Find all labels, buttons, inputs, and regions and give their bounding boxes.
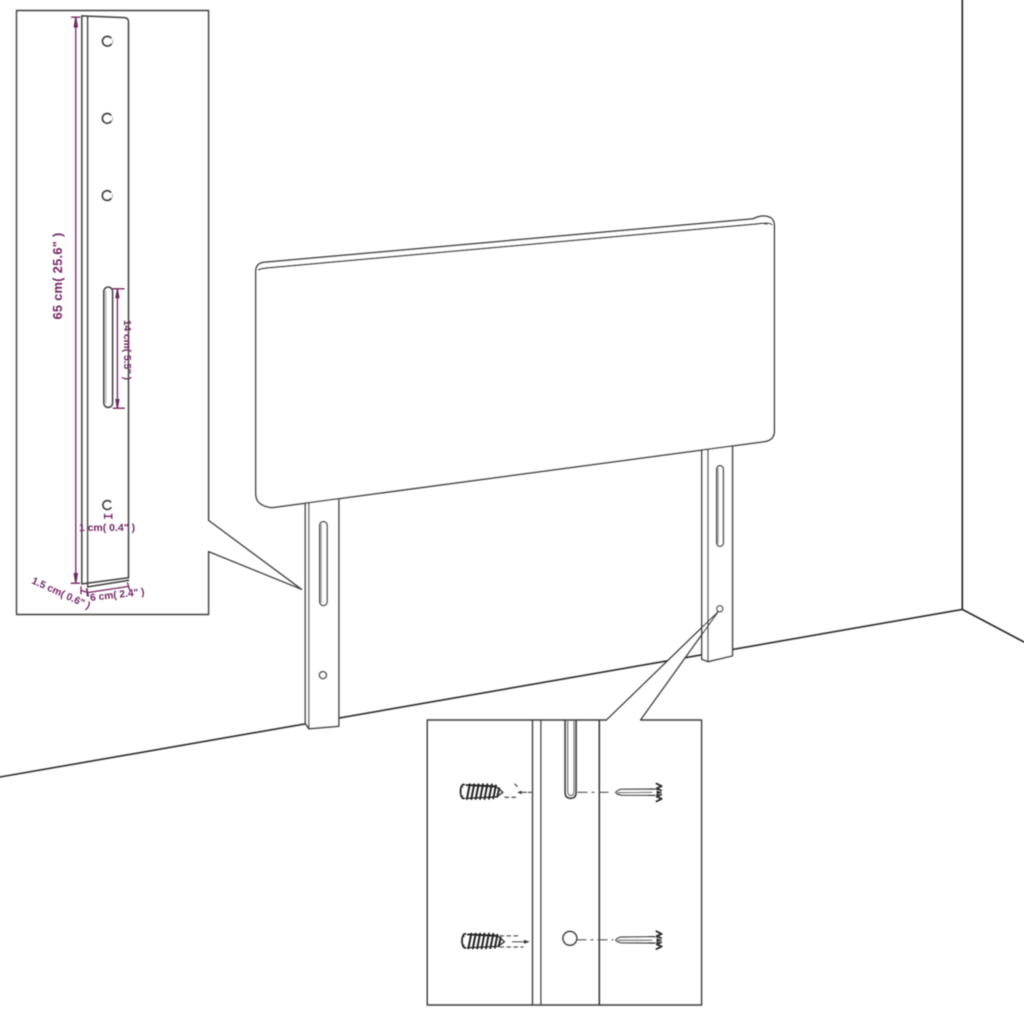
- svg-text:14 cm( 5.5" ): 14 cm( 5.5" ): [121, 320, 132, 380]
- svg-text:65 cm( 25.6" ): 65 cm( 25.6" ): [50, 232, 65, 319]
- svg-text:1 cm( 0.4" ): 1 cm( 0.4" ): [79, 522, 135, 534]
